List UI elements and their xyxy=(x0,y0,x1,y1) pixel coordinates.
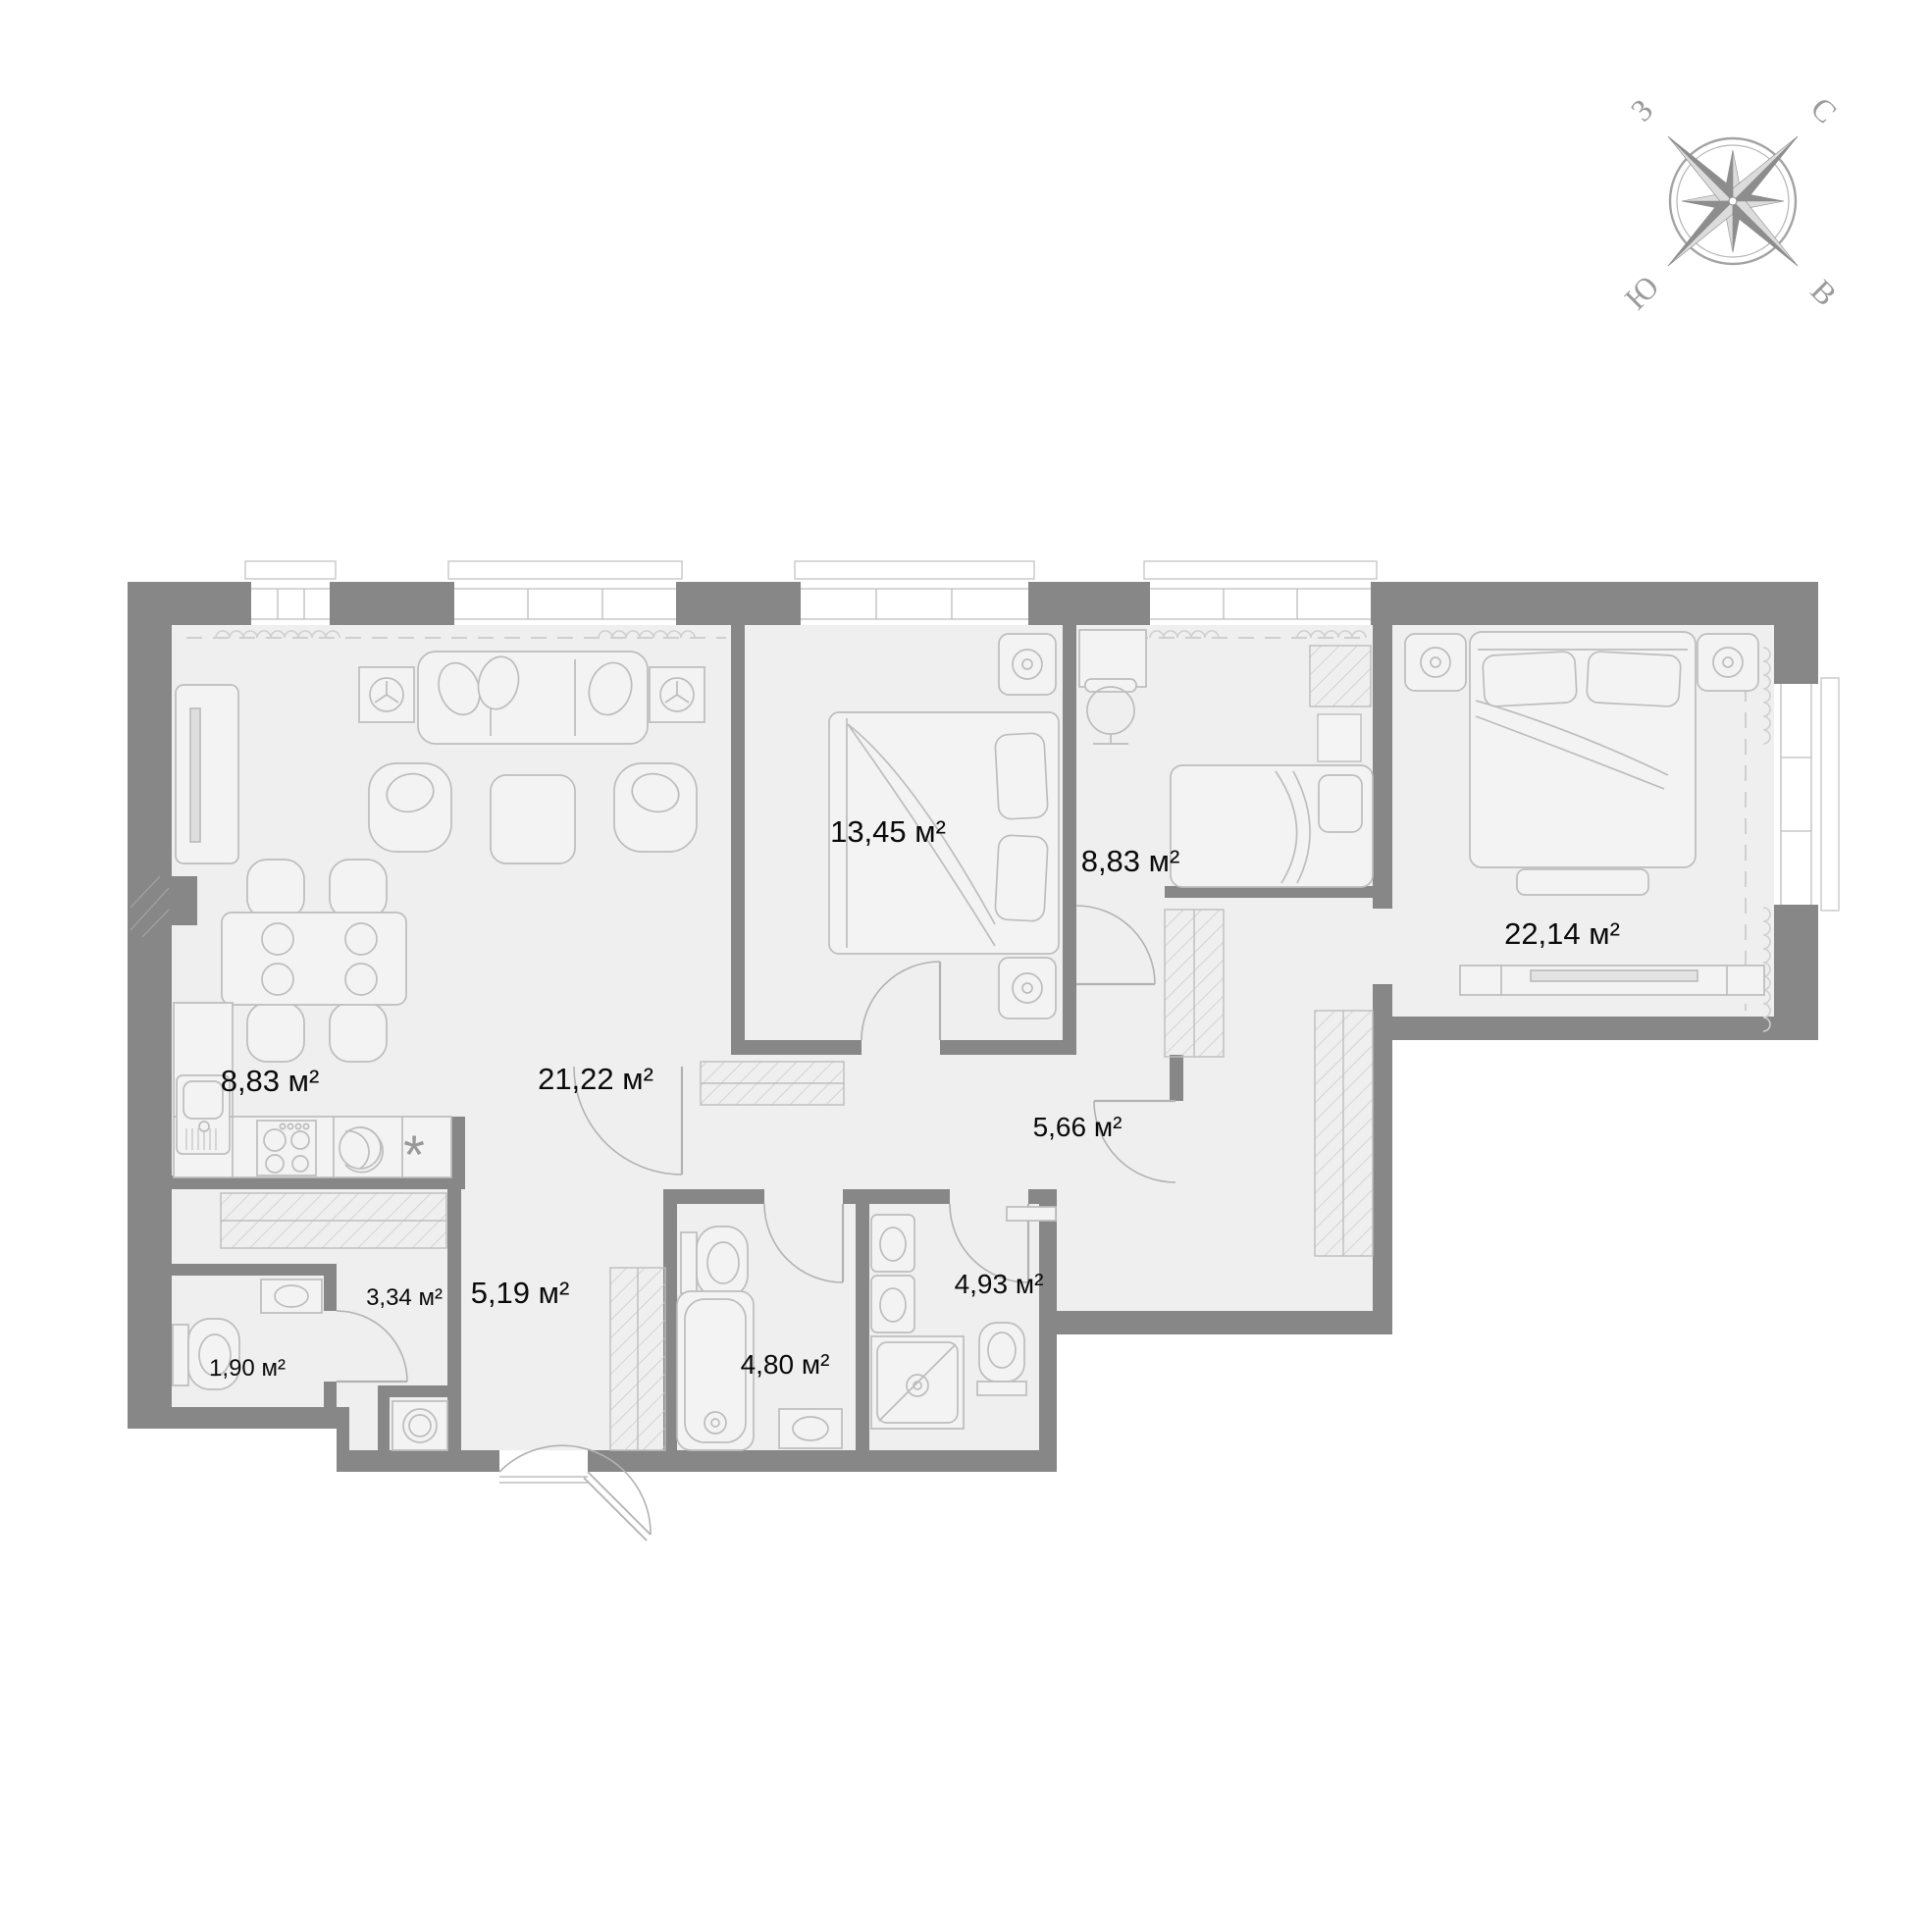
floor-plan-drawing: 8,83 м² 21,22 м² 13,45 м² 8,83 м² 22,14 … xyxy=(0,0,1932,1932)
armchair-right xyxy=(614,763,697,852)
room-label-living: 21,22 м² xyxy=(538,1062,653,1096)
room-label-office: 8,83 м² xyxy=(1081,844,1180,878)
wardrobe-hall xyxy=(701,1062,844,1105)
wardrobe-rack xyxy=(221,1193,446,1248)
window-office xyxy=(1144,561,1377,625)
room-label-hall: 5,66 м² xyxy=(1033,1112,1123,1142)
coffee-table xyxy=(491,775,575,863)
room-label-wardrobe: 3,34 м² xyxy=(366,1284,443,1311)
room-label-entry: 5,19 м² xyxy=(471,1276,570,1310)
sofa xyxy=(418,652,648,744)
window-living-1 xyxy=(245,561,336,625)
window-bedroom xyxy=(795,561,1034,625)
dining-table xyxy=(222,913,406,1005)
compass-west-label: З xyxy=(1624,92,1660,129)
office-bed xyxy=(1171,765,1373,887)
tv-dresser xyxy=(1460,966,1764,995)
room-label-master: 22,14 м² xyxy=(1504,916,1620,951)
speaker-right xyxy=(650,667,705,722)
wardrobe-dressing-2 xyxy=(1315,1011,1373,1256)
compass-south-label: Ю xyxy=(1618,269,1666,317)
tv-unit xyxy=(176,685,238,863)
window-living-2 xyxy=(448,561,682,625)
washing-machine xyxy=(392,1401,447,1450)
sink-bath1 xyxy=(779,1409,842,1448)
kitchen-star-symbol: * xyxy=(403,1123,425,1185)
shelf-bath2 xyxy=(1007,1207,1056,1221)
room-label-bath2: 4,93 м² xyxy=(955,1269,1044,1299)
nightstand-2 xyxy=(999,958,1056,1018)
compass-east-label: В xyxy=(1804,273,1845,313)
compass-rose-icon: З С Ю В xyxy=(1618,90,1845,317)
wardrobe-dressing-1 xyxy=(1165,910,1224,1057)
wardrobe-entry xyxy=(610,1268,665,1450)
nightstand-1 xyxy=(999,634,1056,695)
nightstand-master-left xyxy=(1405,634,1466,691)
window-master-right xyxy=(1774,678,1839,911)
stove xyxy=(257,1121,316,1175)
bed-bench xyxy=(1517,869,1648,895)
wardrobe-office xyxy=(1310,646,1371,761)
room-label-bedroom: 13,45 м² xyxy=(830,814,946,849)
nightstand-master-right xyxy=(1697,634,1758,691)
compass-north-label: С xyxy=(1804,90,1845,131)
room-label-wc: 1,90 м² xyxy=(209,1355,286,1382)
room-label-kitchen: 8,83 м² xyxy=(221,1064,320,1098)
shower xyxy=(871,1336,964,1429)
floor-plan-page: 8,83 м² 21,22 м² 13,45 м² 8,83 м² 22,14 … xyxy=(0,0,1932,1932)
sink-wc xyxy=(261,1279,322,1313)
bed-master xyxy=(1470,632,1696,867)
armchair-left xyxy=(369,763,451,852)
toilet-bath1 xyxy=(681,1227,748,1297)
toilet-bath2 xyxy=(977,1323,1026,1395)
room-label-bath1: 4,80 м² xyxy=(741,1349,830,1380)
speaker-left xyxy=(359,667,414,722)
